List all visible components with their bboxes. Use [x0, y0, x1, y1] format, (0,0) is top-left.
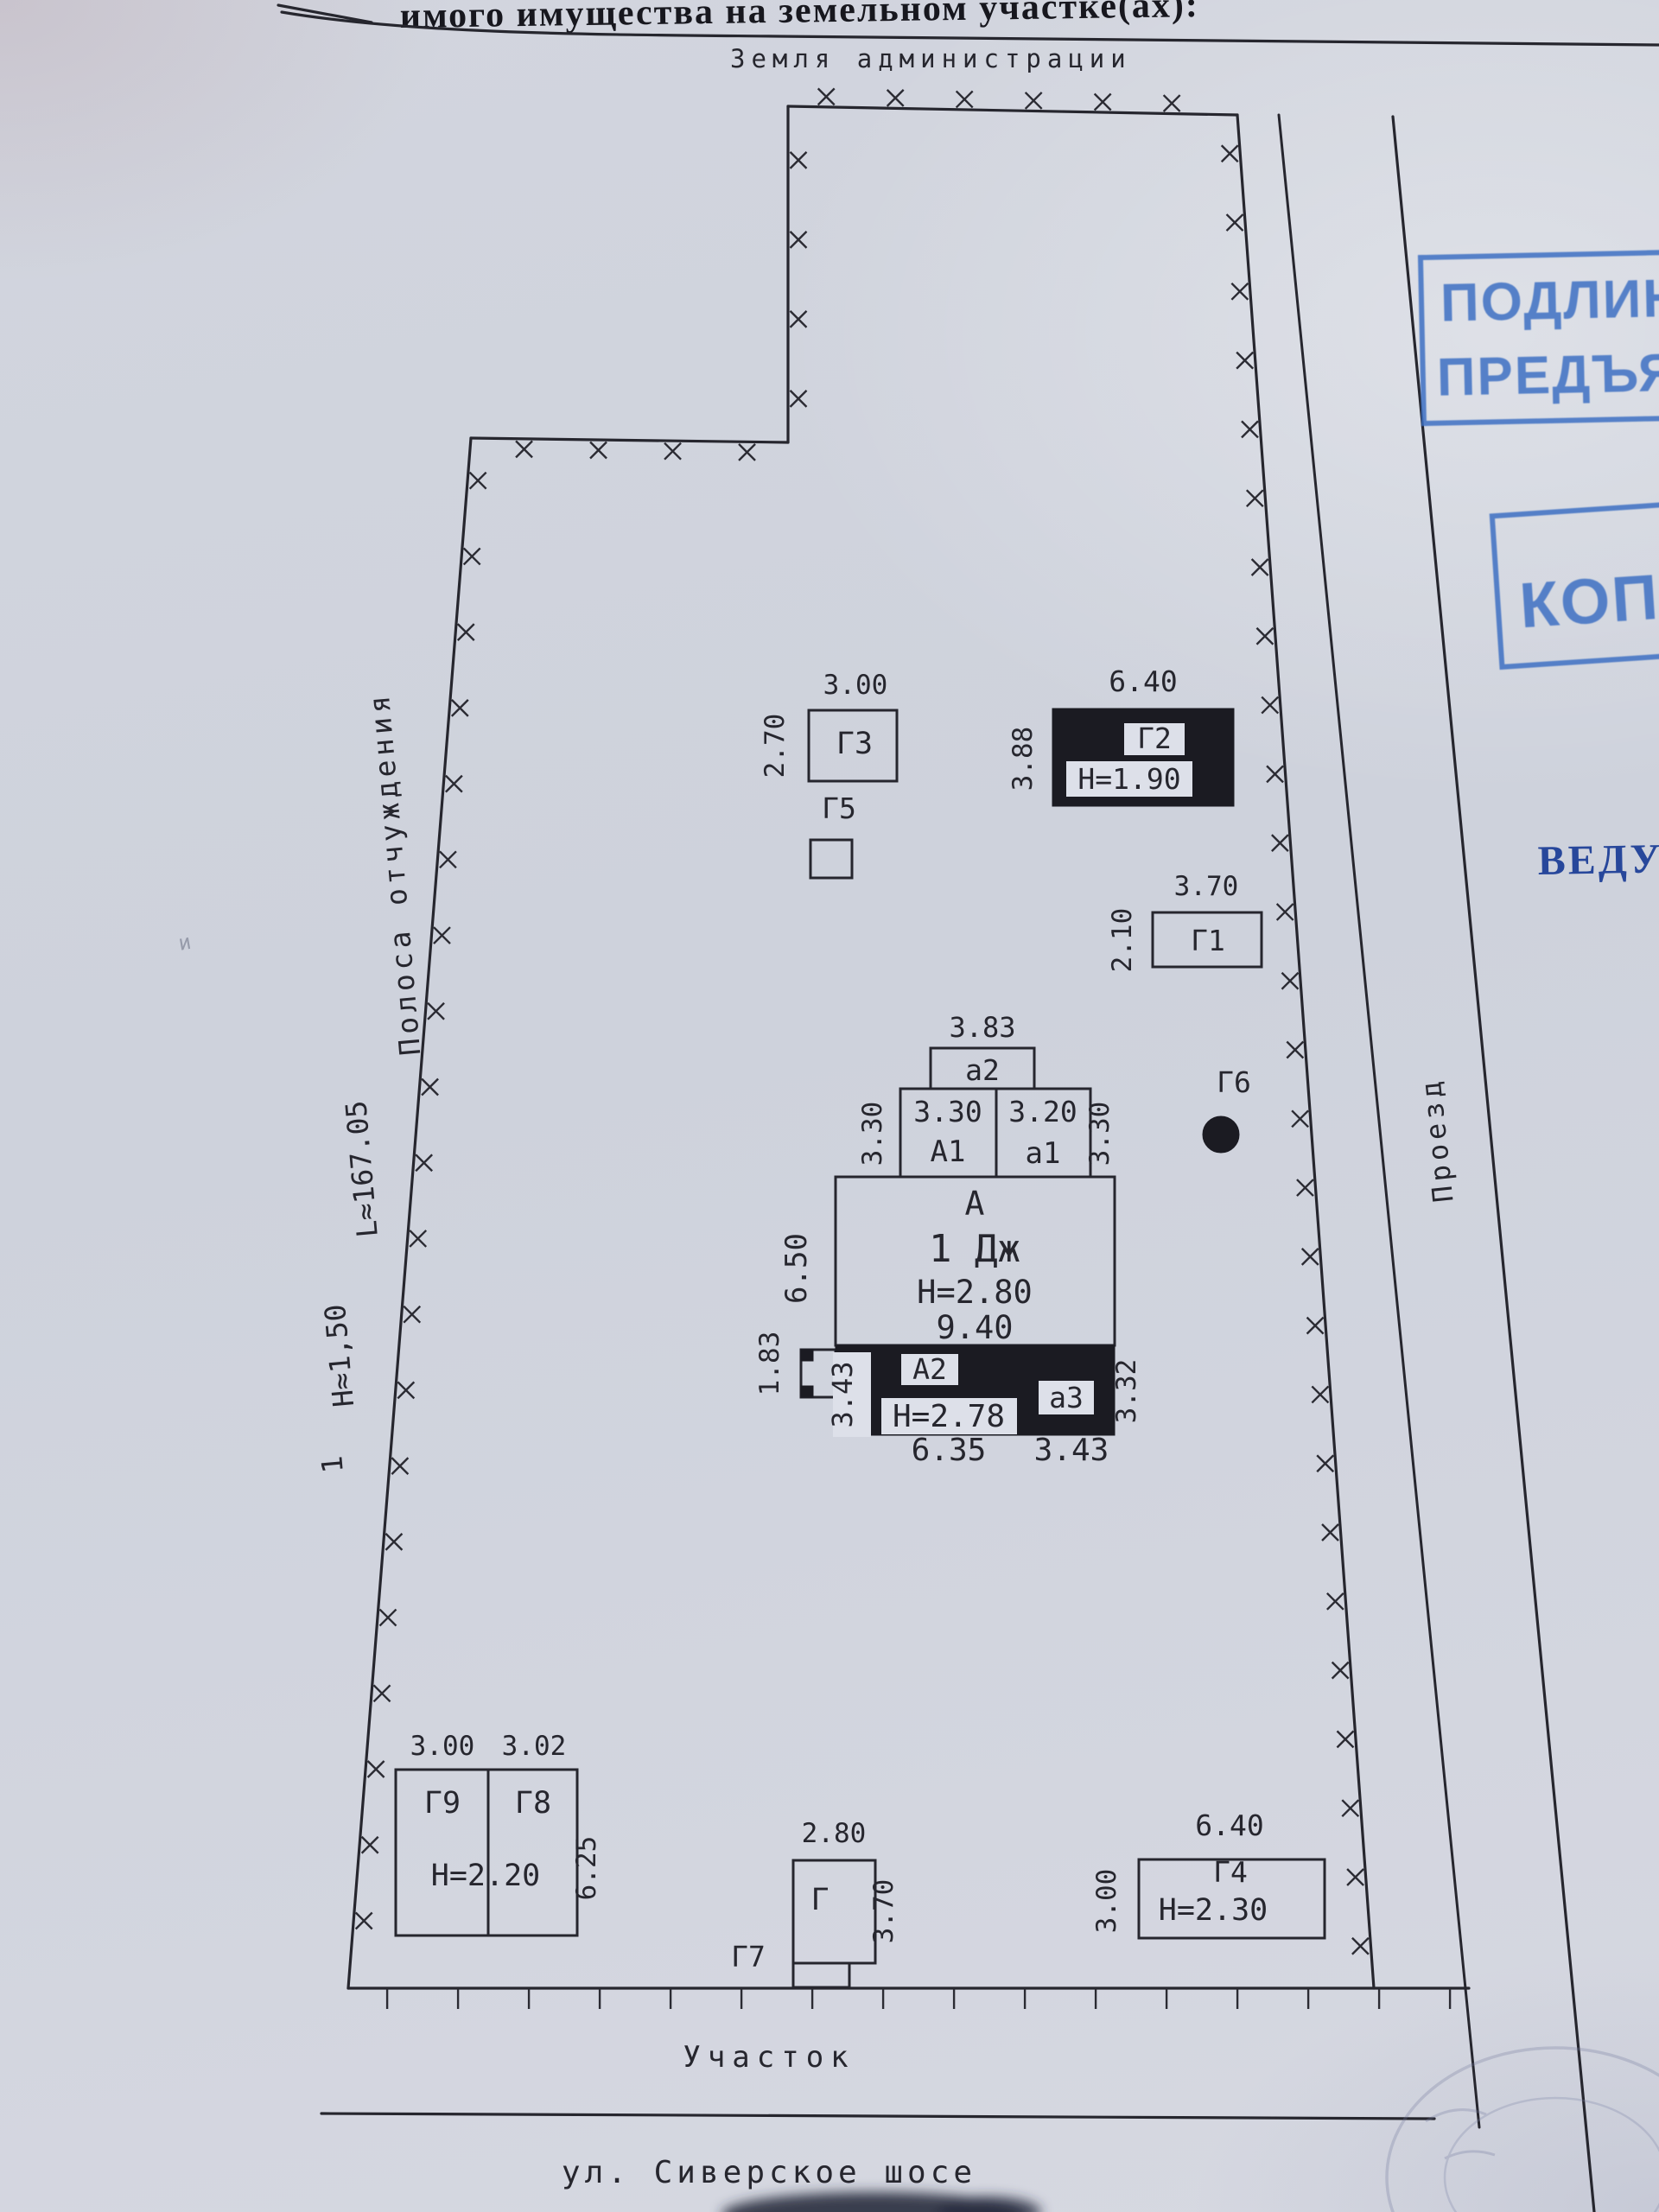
- fence-hatch-marks: [791, 152, 807, 407]
- fence-hatch: [464, 548, 480, 564]
- fence-hatch-marks: [1222, 145, 1369, 1954]
- g4-height-note: Н=2.30: [1159, 1893, 1268, 1928]
- stamp-authentic: ПОДЛИН ПРЕДЪЯ: [1421, 251, 1659, 423]
- fence-hatch: [416, 1154, 432, 1171]
- fence-hatch: [1342, 1800, 1358, 1816]
- a2-ext-height-note: Н=2.78: [893, 1399, 1005, 1434]
- g-outline: [793, 1860, 875, 1963]
- g6-well-dot: [1203, 1116, 1239, 1153]
- fence-height-label: Н≈1,50: [318, 1303, 360, 1408]
- fence-hatch-marks: [387, 1988, 1450, 2009]
- a1-big-label: А1: [931, 1135, 966, 1169]
- fence-hatch: [957, 91, 973, 107]
- a1-small-label: а1: [1026, 1136, 1061, 1171]
- fence-hatch: [452, 700, 468, 716]
- fence-hatch: [1164, 95, 1180, 111]
- plot-label: Участок: [683, 2040, 855, 2075]
- a2-ext-depth-dim: 3.43: [826, 1361, 859, 1427]
- fence-hatch: [1322, 1524, 1338, 1541]
- g2-height-note: Н=1.90: [1077, 762, 1180, 796]
- g-depth-dim: 3.70: [868, 1879, 899, 1944]
- fence-hatch: [356, 1912, 372, 1929]
- header: имого имущества на земельном участке(ах)…: [278, 0, 1659, 73]
- fence-hatch: [374, 1685, 391, 1701]
- fence-hatch: [1252, 559, 1268, 575]
- admin-land-label: Земля администрации: [730, 44, 1132, 73]
- block-a-width-dim: 9.40: [936, 1309, 1013, 1346]
- g1-label: Г1: [1191, 924, 1225, 957]
- fence-hatch: [1292, 1110, 1308, 1127]
- a3-ext-width-dim: 3.43: [1034, 1433, 1109, 1468]
- block-a-label: А: [965, 1185, 985, 1223]
- fence-hatch: [428, 1003, 444, 1020]
- g-notch-outline: [793, 1963, 849, 1987]
- fence-hatch: [1227, 214, 1243, 231]
- faint-round-stamp: [1387, 2048, 1659, 2212]
- building-g5: Г5: [810, 791, 856, 878]
- a2-porch-width-dim: 3.83: [949, 1011, 1015, 1044]
- fence-hatch: [1287, 1042, 1303, 1058]
- fence-hatch: [1337, 1731, 1353, 1747]
- fence-hatch: [791, 311, 807, 327]
- porch-corner-top: [801, 1350, 813, 1361]
- fence-length-label: L≈167.05: [339, 1099, 385, 1239]
- fence-hatch: [385, 1534, 402, 1550]
- g1-depth-dim: 2.10: [1107, 908, 1138, 973]
- porch-depth-dim: 1.83: [754, 1332, 785, 1396]
- pencil-mark: и: [176, 930, 193, 956]
- fence-hatch: [397, 1382, 414, 1398]
- g5-label: Г5: [822, 791, 856, 825]
- fence-hatch: [791, 232, 807, 248]
- fence-hatch: [404, 1306, 420, 1323]
- fence-hatch: [1272, 835, 1288, 851]
- boundary-step-edge: [471, 438, 788, 442]
- street-line: [321, 2113, 1434, 2119]
- fence-hatch: [1236, 353, 1253, 369]
- fence-hatch: [1095, 94, 1111, 111]
- fence-hatch: [1242, 421, 1258, 437]
- g9-label: Г9: [424, 1786, 461, 1821]
- stamp-authentic-line1: ПОДЛИН: [1440, 269, 1659, 334]
- plot-boundary: [348, 88, 1469, 2009]
- fence-hatch: [590, 442, 607, 459]
- fence-hatch: [1282, 973, 1299, 989]
- fence-hatch: [887, 90, 904, 106]
- fence-hatch: [516, 441, 532, 457]
- fence-hatch: [791, 152, 807, 168]
- fence-hatch: [818, 88, 835, 105]
- fence-hatch: [1317, 1455, 1333, 1471]
- a2-porch-label: а2: [965, 1053, 1000, 1087]
- fence-hatch-marks: [516, 441, 755, 461]
- stamp-lead-text: ВЕДУЩ: [1537, 836, 1659, 884]
- fence-hatch: [446, 776, 462, 792]
- fence-hatch: [1026, 92, 1042, 109]
- fence-hatch: [1312, 1386, 1328, 1402]
- fence-hatch: [1347, 1869, 1363, 1885]
- fence-hatch: [422, 1079, 438, 1096]
- building-g3: 3.00 2.70 Г3: [760, 670, 897, 781]
- fence-hatch: [458, 624, 474, 640]
- fence-hatch: [470, 473, 486, 489]
- g2-width-dim: 6.40: [1109, 664, 1177, 698]
- g1-width-dim: 3.70: [1174, 871, 1239, 902]
- g8-width-dim: 3.02: [502, 1731, 567, 1762]
- a3-ext-depth-dim: 3.32: [1111, 1359, 1142, 1424]
- g4-width-dim: 6.40: [1195, 1808, 1263, 1842]
- boundary-top-edge: [788, 106, 1237, 115]
- building-g-g7: 2.80 Г 3.70 Г7: [731, 1818, 899, 1987]
- building-g9-g8: 3.00 3.02 Г9 Г8 Н=2.20 6.25: [396, 1731, 602, 1935]
- a1-big-width-dim: 3.30: [913, 1095, 982, 1128]
- point-number-label: 1: [315, 1454, 350, 1474]
- fence-hatch: [1327, 1593, 1344, 1610]
- faint-stamp-outer-ring: [1387, 2048, 1659, 2212]
- fence-hatch: [1222, 145, 1238, 162]
- g-width-dim: 2.80: [802, 1818, 867, 1849]
- g7-label: Г7: [731, 1940, 766, 1974]
- a2-ext-width-dim: 6.35: [912, 1433, 987, 1468]
- building-g4: 6.40 3.00 Г4 Н=2.30: [1091, 1808, 1325, 1938]
- g8-label: Г8: [515, 1786, 551, 1821]
- stamp-authentic-line2: ПРЕДЪЯ: [1436, 343, 1659, 408]
- road-label: Проезд: [1414, 1076, 1460, 1205]
- block-a-depth-dim: 6.50: [779, 1233, 814, 1304]
- fence-hatch: [368, 1761, 385, 1777]
- fence-hatch: [791, 391, 807, 407]
- g2-label: Г2: [1137, 721, 1172, 755]
- fence-hatch: [1302, 1249, 1319, 1265]
- building-g2: 6.40 3.88 Г2 Н=1.90: [1007, 664, 1234, 806]
- fence-hatch: [379, 1610, 396, 1626]
- fence-hatch: [391, 1458, 408, 1474]
- g2-depth-dim: 3.88: [1007, 727, 1039, 791]
- stamp-copy-text: КОПИЯ: [1517, 554, 1659, 641]
- fence-hatch: [362, 1837, 378, 1853]
- building-g6: Г6: [1203, 1065, 1251, 1153]
- fence-hatch: [664, 443, 681, 460]
- exclusion-strip-label: Полоса отчуждения: [362, 690, 428, 1058]
- fence-hatch: [1277, 904, 1294, 920]
- fence-hatch: [1352, 1938, 1369, 1955]
- stamp-copy: КОПИЯ: [1492, 493, 1659, 667]
- site-plan-drawing: имого имущества на земельном участке(ах)…: [0, 0, 1659, 2212]
- a1-small-depth-dim: 3.30: [1084, 1102, 1116, 1166]
- fence-hatch: [1247, 490, 1263, 506]
- g3-label: Г3: [836, 727, 873, 761]
- fence-hatch: [1307, 1318, 1324, 1334]
- building-g1: 3.70 2.10 Г1: [1107, 871, 1262, 972]
- a1-big-depth-dim: 3.30: [857, 1102, 888, 1166]
- g3-width-dim: 3.00: [823, 670, 888, 701]
- fence-hatch: [434, 927, 450, 944]
- bottom-edge-smudge: [721, 2192, 1041, 2212]
- g6-label: Г6: [1217, 1065, 1251, 1099]
- block-a-height-note: Н=2.80: [917, 1274, 1033, 1311]
- fence-hatch: [1297, 1179, 1313, 1196]
- g3-depth-dim: 2.70: [760, 714, 791, 779]
- g4-depth-dim: 3.00: [1091, 1869, 1122, 1934]
- fence-hatch: [440, 851, 456, 868]
- fence-hatch: [1256, 628, 1273, 645]
- fence-hatch: [1332, 1662, 1349, 1679]
- fence-hatch: [739, 444, 755, 461]
- a2-ext-label: А2: [912, 1352, 947, 1386]
- fence-hatch: [410, 1230, 426, 1247]
- g9-width-dim: 3.00: [410, 1731, 475, 1762]
- g9-g8-depth-dim: 6.25: [571, 1836, 602, 1901]
- scanned-site-plan-page: имого имущества на земельном участке(ах)…: [0, 0, 1659, 2212]
- fence-hatch: [1231, 283, 1248, 300]
- main-building: 3.83 а2 3.30 А1 3.20 а1 3.30 3.30 А 1 Дж…: [754, 1011, 1142, 1468]
- porch-corner-bottom: [801, 1386, 813, 1397]
- fence-hatch: [1262, 697, 1278, 714]
- g4-label: Г4: [1213, 1855, 1248, 1889]
- block-a-unit: 1 Дж: [929, 1227, 1020, 1271]
- a1-small-width-dim: 3.20: [1008, 1095, 1077, 1128]
- a3-ext-label: а3: [1049, 1381, 1084, 1414]
- g5-outline: [810, 840, 852, 878]
- g-label: Г: [810, 1883, 829, 1917]
- fence-hatch: [1267, 766, 1283, 782]
- street-name-label: ул. Сиверское шосе: [562, 2155, 976, 2190]
- g9-g8-height-note: Н=2.20: [431, 1859, 540, 1893]
